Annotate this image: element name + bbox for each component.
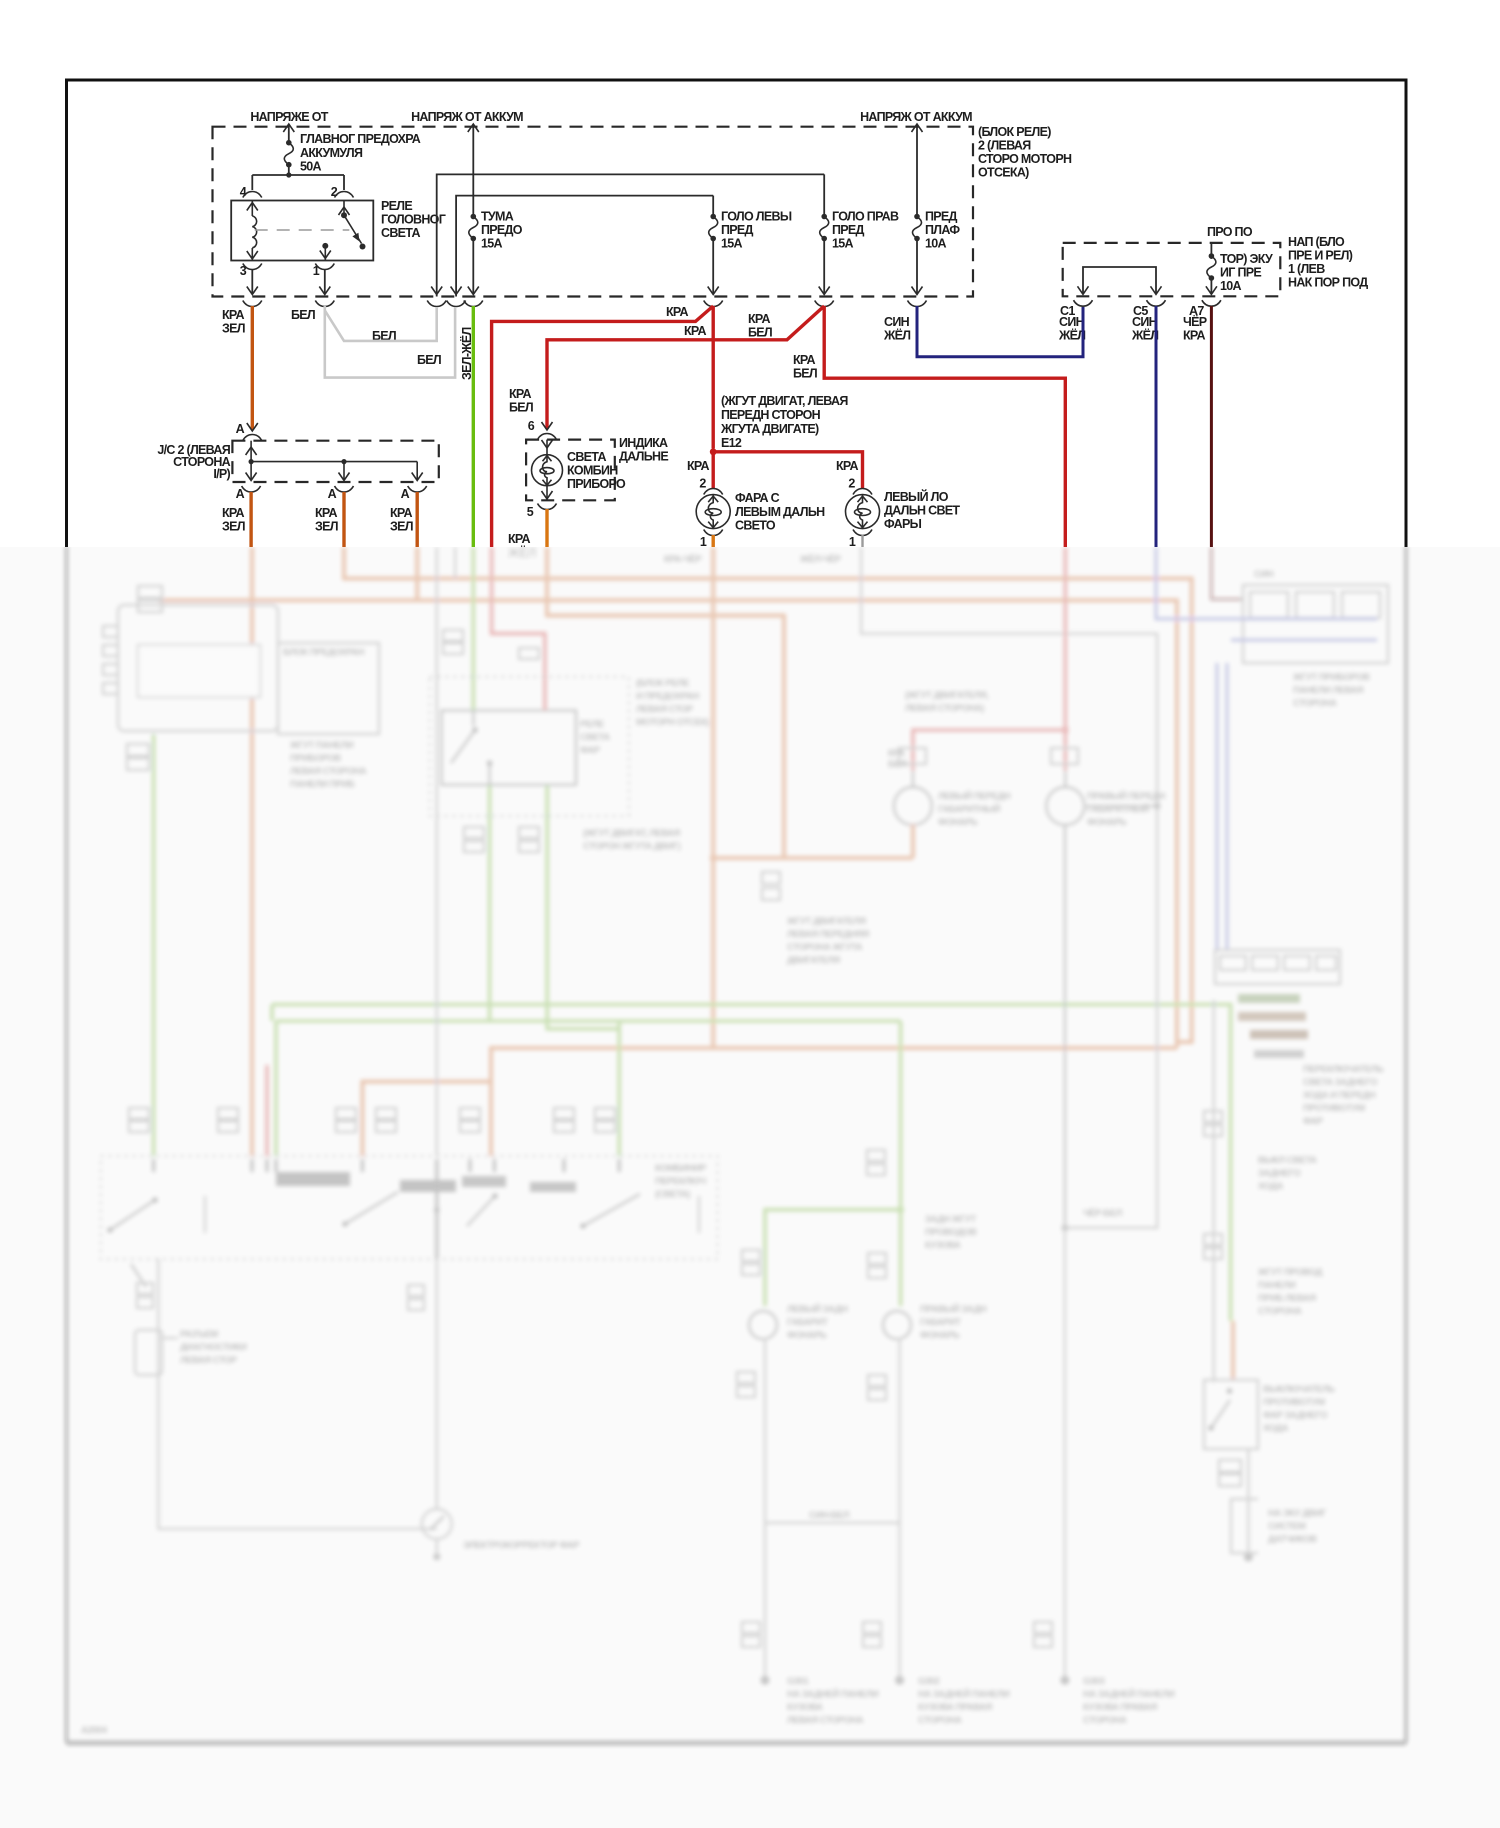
svg-text:(БЛОК РЕЛЕ): (БЛОК РЕЛЕ)	[978, 125, 1051, 139]
svg-text:ГОЛО ПРАВ: ГОЛО ПРАВ	[832, 210, 899, 224]
svg-text:ЖГУТ ПРОВОД: ЖГУТ ПРОВОД	[1257, 1267, 1323, 1278]
svg-text:КРА: КРА	[684, 324, 706, 338]
svg-text:РЕЛЕ: РЕЛЕ	[381, 199, 412, 213]
svg-text:СТОРОНА: СТОРОНА	[1083, 1715, 1127, 1726]
svg-text:ЧЁР-БЕЛ: ЧЁР-БЕЛ	[1083, 1208, 1123, 1219]
svg-text:ГЛАВНОГ ПРЕДОХРА: ГЛАВНОГ ПРЕДОХРА	[300, 132, 421, 146]
svg-text:ПАНЕЛИ ПРИБ: ПАНЕЛИ ПРИБ	[290, 779, 355, 790]
svg-text:ЭЛЕКТРОКОРРЕКТОР ФАР: ЭЛЕКТРОКОРРЕКТОР ФАР	[463, 1540, 580, 1551]
svg-text:ПРИБОРОВ: ПРИБОРОВ	[290, 753, 341, 764]
svg-text:ФАР: ФАР	[1303, 1116, 1324, 1127]
svg-text:КРА: КРА	[509, 387, 531, 401]
svg-text:ПРОВОДОВ: ПРОВОДОВ	[925, 1227, 977, 1238]
svg-text:(СВЕТА): (СВЕТА)	[655, 1189, 690, 1200]
svg-text:СТОРОНА ЖГУТА: СТОРОНА ЖГУТА	[787, 942, 863, 953]
svg-text:(ЖГУТ ДВИГАТ, ЛЕВАЯ: (ЖГУТ ДВИГАТ, ЛЕВАЯ	[583, 828, 680, 839]
svg-text:ЗЕЛ: ЗЕЛ	[222, 322, 245, 336]
svg-text:СВЕТА: СВЕТА	[580, 732, 610, 743]
svg-text:СТОРОНА: СТОРОНА	[918, 1715, 962, 1726]
svg-text:КРА: КРА	[836, 459, 858, 473]
svg-text:6: 6	[528, 419, 535, 433]
svg-text:15А: 15А	[481, 237, 503, 251]
svg-text:КРА: КРА	[888, 748, 905, 759]
svg-text:КРА: КРА	[390, 506, 412, 520]
svg-text:СИСТЕМ: СИСТЕМ	[1268, 1521, 1306, 1532]
svg-text:ПРЕД: ПРЕД	[832, 223, 865, 237]
svg-text:СТОРО МОТОРН: СТОРО МОТОРН	[978, 152, 1072, 166]
svg-text:КРА: КРА	[687, 459, 709, 473]
svg-text:А2004: А2004	[81, 1725, 108, 1736]
svg-text:ПРАВЫЙ ЗАДН: ПРАВЫЙ ЗАДН	[920, 1303, 987, 1315]
svg-text:ЖГУТ ПРИБОРОВ: ЖГУТ ПРИБОРОВ	[1292, 672, 1370, 683]
svg-text:15А: 15А	[721, 237, 743, 251]
svg-text:1: 1	[849, 535, 856, 549]
svg-text:НАП (БЛО: НАП (БЛО	[1288, 235, 1345, 249]
svg-text:ПРЕД: ПРЕД	[721, 223, 754, 237]
svg-text:ЛЕВАЯ СТОРОНА: ЛЕВАЯ СТОРОНА	[290, 766, 367, 777]
svg-text:ПРОТИВОТУМ: ПРОТИВОТУМ	[1303, 1103, 1365, 1114]
svg-text:15А: 15А	[832, 237, 854, 251]
svg-text:ФАР: ФАР	[580, 745, 601, 756]
svg-text:ФАР ЗАДНЕГО: ФАР ЗАДНЕГО	[1263, 1410, 1327, 1421]
svg-text:ДАЛЬН СВЕТ: ДАЛЬН СВЕТ	[884, 504, 960, 518]
svg-text:ЖГУТ ПАНЕЛИ: ЖГУТ ПАНЕЛИ	[289, 740, 354, 751]
svg-text:ГАБАРИТ: ГАБАРИТ	[920, 1317, 961, 1328]
svg-text:КРА: КРА	[748, 312, 770, 326]
svg-text:ГОЛО ЛЕВЫ: ГОЛО ЛЕВЫ	[721, 210, 792, 224]
svg-text:(ЖГУТ ДВИГАТ, ЛЕВАЯ: (ЖГУТ ДВИГАТ, ЛЕВАЯ	[721, 394, 848, 408]
svg-text:ВЫКЛЮЧАТЕЛЬ: ВЫКЛЮЧАТЕЛЬ	[1263, 1384, 1335, 1395]
svg-text:НАК ПОР ПОД: НАК ПОР ПОД	[1288, 276, 1368, 290]
svg-text:10А: 10А	[1220, 279, 1242, 293]
svg-text:НАПРЯЖ ОТ АККУМ: НАПРЯЖ ОТ АККУМ	[411, 110, 523, 124]
svg-text:БЕЛ: БЕЛ	[748, 326, 772, 340]
svg-text:И ПРЕДОХРАН: И ПРЕДОХРАН	[636, 691, 699, 702]
svg-text:ЖЁЛ: ЖЁЛ	[1131, 328, 1158, 343]
svg-text:ПАНЕЛИ: ПАНЕЛИ	[1258, 1280, 1296, 1291]
svg-text:(БЛОК РЕЛЕ: (БЛОК РЕЛЕ	[636, 678, 689, 689]
svg-text:5: 5	[527, 505, 534, 519]
svg-text:ЗЕЛ: ЗЕЛ	[315, 520, 338, 534]
svg-text:ДАТЧИКОВ: ДАТЧИКОВ	[1268, 1534, 1317, 1545]
svg-text:50А: 50А	[300, 160, 322, 174]
svg-text:КРА: КРА	[508, 532, 530, 546]
svg-text:ДВИГАТЕЛЯ: ДВИГАТЕЛЯ	[787, 955, 840, 966]
svg-text:1 (ЛЕВ: 1 (ЛЕВ	[1288, 262, 1325, 276]
svg-text:ЖЁЛ: ЖЁЛ	[508, 546, 536, 560]
svg-text:КРА: КРА	[222, 308, 244, 322]
svg-text:КРА: КРА	[222, 506, 244, 520]
svg-text:ЖЁЛ: ЖЁЛ	[883, 328, 910, 343]
svg-text:НАПРЯЖ ОТ АККУМ: НАПРЯЖ ОТ АККУМ	[860, 110, 972, 124]
svg-text:СИН: СИН	[1132, 315, 1158, 329]
svg-text:ПЕРЕКЛЮЧАТЕЛЬ: ПЕРЕКЛЮЧАТЕЛЬ	[1303, 1064, 1384, 1075]
svg-text:ЖГУТ ДВИГАТЕЛЯ: ЖГУТ ДВИГАТЕЛЯ	[786, 916, 866, 927]
svg-text:ЖЁЛ: ЖЁЛ	[1058, 328, 1085, 343]
svg-text:КОМБИНИР: КОМБИНИР	[655, 1163, 707, 1174]
svg-text:ФОНАРЬ: ФОНАРЬ	[1087, 817, 1127, 828]
svg-text:2 (ЛЕВАЯ: 2 (ЛЕВАЯ	[978, 139, 1031, 153]
svg-text:2: 2	[848, 477, 855, 491]
svg-text:АККУМУЛЯ: АККУМУЛЯ	[300, 146, 363, 160]
svg-text:А: А	[236, 487, 245, 501]
svg-text:ПРЕДО: ПРЕДО	[481, 223, 523, 237]
svg-text:(ЖГУТ ДВИГАТЕЛЯ,: (ЖГУТ ДВИГАТЕЛЯ,	[905, 690, 988, 701]
svg-text:СИН-БЕЛ: СИН-БЕЛ	[809, 1510, 850, 1521]
svg-text:ЛЕВЫМ ДАЛЬН: ЛЕВЫМ ДАЛЬН	[735, 505, 825, 519]
svg-text:ПАНЕЛИ ЛЕВАЯ: ПАНЕЛИ ЛЕВАЯ	[1293, 685, 1364, 696]
svg-text:ПЕРЕДН СТОРОН: ПЕРЕДН СТОРОН	[721, 408, 821, 422]
svg-text:ФОНАРЬ: ФОНАРЬ	[920, 1330, 960, 1341]
svg-text:G301: G301	[787, 1676, 809, 1687]
svg-text:НА ЭКУ ДВИГ: НА ЭКУ ДВИГ	[1268, 1508, 1327, 1519]
svg-text:СВЕТО: СВЕТО	[735, 519, 776, 533]
svg-text:БЕЛ: БЕЛ	[291, 308, 315, 322]
svg-text:ЛЕВАЯ ПЕРЕДНЯЯ: ЛЕВАЯ ПЕРЕДНЯЯ	[787, 929, 870, 940]
svg-text:СТОРОНА: СТОРОНА	[1293, 698, 1337, 709]
svg-text:СВЕТА: СВЕТА	[567, 450, 606, 464]
svg-text:ЗАДНЕГО: ЗАДНЕГО	[1258, 1168, 1300, 1179]
svg-text:А: А	[401, 487, 410, 501]
svg-text:СТОРОН ЖГУТА ДВИГ): СТОРОН ЖГУТА ДВИГ)	[583, 841, 681, 852]
svg-text:G303: G303	[1083, 1676, 1104, 1687]
svg-text:ПРИБОРО: ПРИБОРО	[567, 477, 626, 491]
svg-text:ХОДА И ПЕРЕДН: ХОДА И ПЕРЕДН	[1303, 1090, 1376, 1101]
svg-text:ТУМА: ТУМА	[481, 210, 514, 224]
svg-text:ФОНАРЬ: ФОНАРЬ	[938, 817, 978, 828]
svg-text:КРА: КРА	[1183, 329, 1205, 343]
svg-text:ИНДИКА: ИНДИКА	[619, 436, 668, 450]
svg-text:ЛЕВАЯ СТОР: ЛЕВАЯ СТОР	[180, 1355, 238, 1366]
svg-text:ПРОТИВОТУМ: ПРОТИВОТУМ	[1263, 1397, 1325, 1408]
svg-text:КУЗОВА: КУЗОВА	[787, 1702, 823, 1713]
svg-text:ХОДА: ХОДА	[1263, 1423, 1289, 1434]
svg-text:ГАБАРИТ: ГАБАРИТ	[787, 1317, 828, 1328]
svg-text:НАПРЯЖЕ ОТ: НАПРЯЖЕ ОТ	[250, 110, 328, 124]
svg-text:СИН: СИН	[1254, 569, 1274, 580]
svg-text:СТОРОНА: СТОРОНА	[1258, 1306, 1302, 1317]
svg-text:КРА-ЧЁР: КРА-ЧЁР	[664, 554, 702, 565]
svg-text:ИГ ПРЕ: ИГ ПРЕ	[1220, 266, 1261, 280]
svg-text:1: 1	[700, 535, 707, 549]
svg-text:ПРЕД: ПРЕД	[925, 210, 958, 224]
svg-text:ЛЕВАЯ СТОРОНА: ЛЕВАЯ СТОРОНА	[787, 1715, 864, 1726]
svg-text:НА ЗАДНЕЙ ПАНЕЛИ: НА ЗАДНЕЙ ПАНЕЛИ	[1083, 1688, 1175, 1700]
svg-text:2: 2	[699, 477, 706, 491]
svg-text:ЗЕЛ: ЗЕЛ	[390, 520, 413, 534]
svg-text:ПРИБ ЛЕВАЯ: ПРИБ ЛЕВАЯ	[1258, 1293, 1316, 1304]
svg-text:ЛЕВАЯ СТОРОНА): ЛЕВАЯ СТОРОНА)	[905, 703, 984, 714]
svg-text:ВЫКЛ СВЕТА: ВЫКЛ СВЕТА	[1258, 1155, 1317, 1166]
svg-text:ЧЁР: ЧЁР	[1183, 314, 1207, 329]
svg-text:ЖГУТА ДВИГАТЕ): ЖГУТА ДВИГАТЕ)	[720, 422, 819, 436]
svg-text:А: А	[328, 487, 337, 501]
svg-text:ПРЕ И РЕЛ): ПРЕ И РЕЛ)	[1288, 249, 1353, 263]
svg-text:КРА: КРА	[315, 506, 337, 520]
svg-text:КОМБИН: КОМБИН	[567, 464, 618, 478]
svg-text:БЕЛ: БЕЛ	[417, 353, 441, 367]
svg-text:ДИАГНОСТИКИ: ДИАГНОСТИКИ	[180, 1342, 247, 1353]
svg-text:РАЗЪЕМ: РАЗЪЕМ	[180, 1329, 218, 1340]
svg-text:ЛЕВАЯ СТОР: ЛЕВАЯ СТОР	[636, 704, 694, 715]
svg-text:МОТОРН ОТСЕК): МОТОРН ОТСЕК)	[636, 717, 709, 728]
svg-text:ПРО ПО: ПРО ПО	[1207, 225, 1253, 239]
svg-text:СВЕТА: СВЕТА	[381, 226, 420, 240]
svg-text:НА ЗАДНЕЙ ПАНЕЛИ: НА ЗАДНЕЙ ПАНЕЛИ	[918, 1688, 1010, 1700]
svg-text:БЕЛ: БЕЛ	[793, 367, 817, 381]
svg-text:КУЗОВА ПРАВАЯ: КУЗОВА ПРАВАЯ	[918, 1702, 992, 1713]
svg-text:ФОНАРЬ: ФОНАРЬ	[787, 1330, 827, 1341]
svg-text:ПЛАФ: ПЛАФ	[925, 223, 960, 237]
svg-text:ФАРА С: ФАРА С	[735, 491, 780, 505]
svg-text:Е12: Е12	[721, 436, 742, 450]
svg-text:БЕЛ: БЕЛ	[888, 759, 907, 770]
svg-text:ПРАВЫЙ ПЕРЕДН: ПРАВЫЙ ПЕРЕДН	[1087, 790, 1165, 802]
svg-text:ТОР) ЭКУ: ТОР) ЭКУ	[1220, 252, 1273, 266]
svg-text:I/Р): I/Р)	[213, 467, 230, 481]
svg-text:КУЗОВА ПРАВАЯ: КУЗОВА ПРАВАЯ	[1083, 1702, 1157, 1713]
svg-text:ЖЁЛ-ЧЁР: ЖЁЛ-ЧЁР	[799, 554, 842, 565]
svg-text:G302: G302	[918, 1676, 939, 1687]
svg-text:А: А	[236, 422, 245, 436]
svg-text:ЛЕВЫЙ ЛО: ЛЕВЫЙ ЛО	[884, 489, 949, 504]
svg-text:СИН: СИН	[1059, 315, 1085, 329]
svg-text:ГАБАРИТНЫЙ: ГАБАРИТНЫЙ	[1087, 803, 1150, 815]
svg-text:БЕЛ: БЕЛ	[509, 401, 533, 415]
svg-text:ЗЕЛ: ЗЕЛ	[222, 520, 245, 534]
svg-text:НА ЗАДНЕЙ ПАНЕЛИ: НА ЗАДНЕЙ ПАНЕЛИ	[787, 1688, 879, 1700]
svg-text:КУЗОВА: КУЗОВА	[925, 1240, 961, 1251]
svg-text:ФАРЫ: ФАРЫ	[884, 517, 922, 531]
svg-text:ЗАДН ЖГУТ: ЗАДН ЖГУТ	[925, 1214, 976, 1225]
svg-text:ЛЕВЫЙ ЗАДН: ЛЕВЫЙ ЗАДН	[787, 1303, 848, 1315]
svg-text:ДАЛЬНЕ: ДАЛЬНЕ	[619, 450, 668, 464]
svg-text:КРА: КРА	[666, 305, 688, 319]
svg-text:ОТСЕКА): ОТСЕКА)	[978, 166, 1029, 180]
svg-text:СВЕТА ЗАДНЕГО: СВЕТА ЗАДНЕГО	[1303, 1077, 1377, 1088]
svg-text:ГАБАРИТНЫЙ: ГАБАРИТНЫЙ	[938, 803, 1001, 815]
svg-text:ЛЕВЫЙ ПЕРЕДН: ЛЕВЫЙ ПЕРЕДН	[938, 790, 1011, 802]
svg-text:10А: 10А	[925, 237, 947, 251]
svg-text:ПЕРЕКЛЮЧ: ПЕРЕКЛЮЧ	[655, 1176, 706, 1187]
svg-text:РЕЛЕ: РЕЛЕ	[580, 719, 604, 730]
svg-text:БЛОК ПРЕДОХРАН: БЛОК ПРЕДОХРАН	[283, 647, 365, 658]
svg-text:СИН: СИН	[884, 315, 910, 329]
svg-text:КРА: КРА	[793, 353, 815, 367]
svg-text:ХОДА: ХОДА	[1258, 1181, 1284, 1192]
